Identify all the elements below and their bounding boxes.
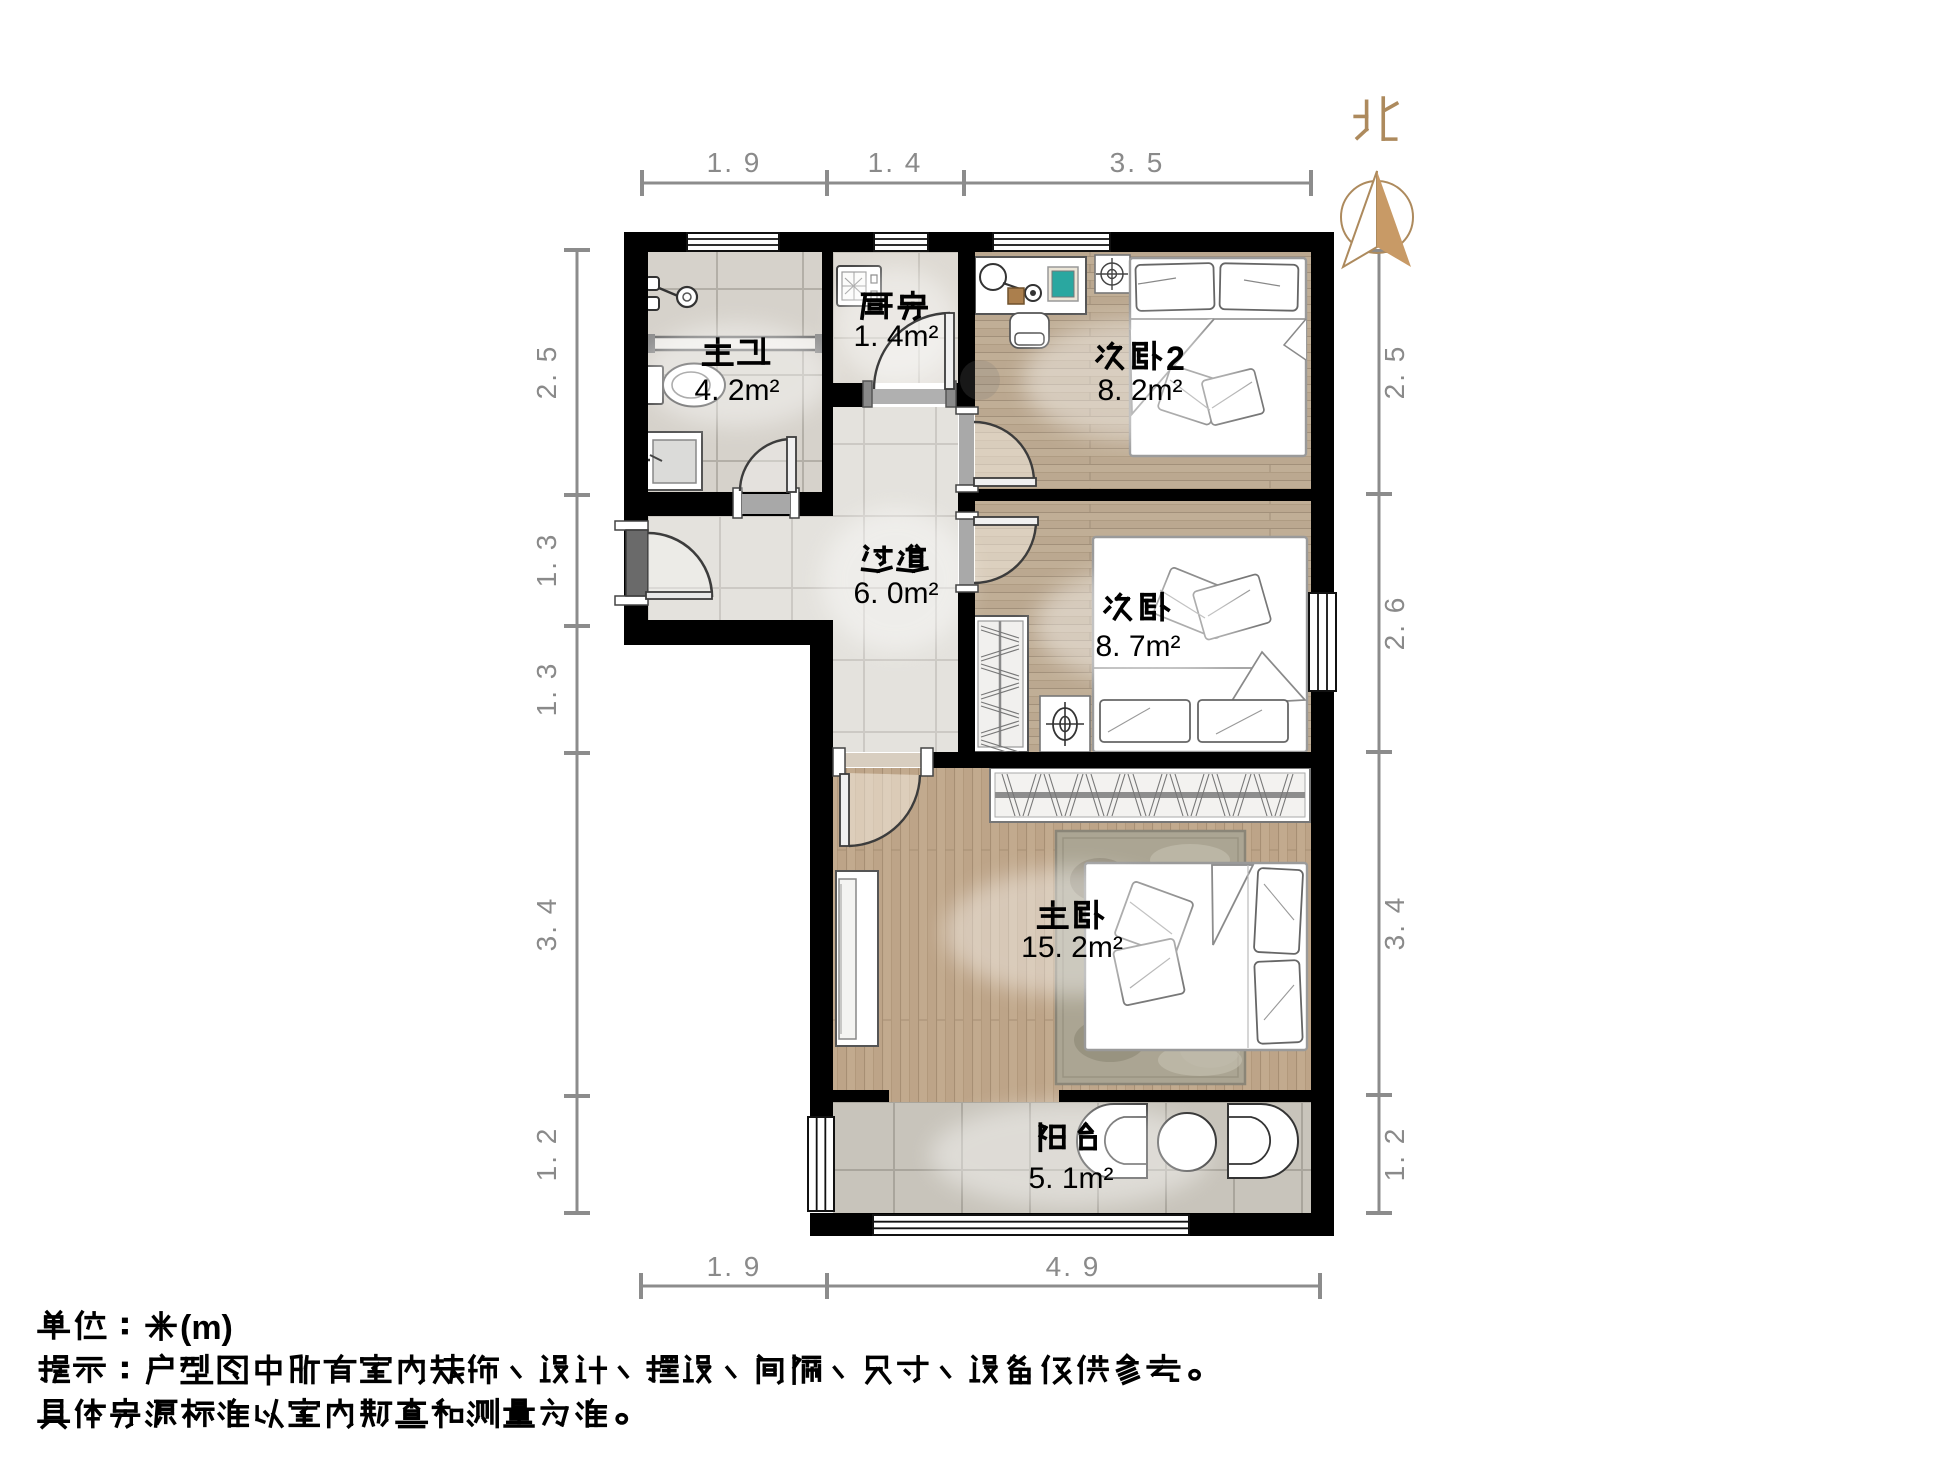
svg-text:3. 5: 3. 5 (1110, 147, 1165, 178)
svg-text:1. 4: 1. 4 (868, 147, 923, 178)
svg-text:(m): (m) (180, 1309, 233, 1347)
svg-text:3. 4: 3. 4 (531, 897, 562, 952)
svg-text:8. 7m²: 8. 7m² (1095, 630, 1180, 663)
svg-text:2. 5: 2. 5 (531, 345, 562, 400)
svg-text:3. 4: 3. 4 (1379, 896, 1410, 951)
svg-text:1. 2: 1. 2 (1379, 1127, 1410, 1182)
svg-text:1. 3: 1. 3 (531, 662, 562, 717)
svg-text:1. 9: 1. 9 (707, 1251, 762, 1282)
svg-text:5. 1m²: 5. 1m² (1028, 1162, 1113, 1195)
svg-text:1. 9: 1. 9 (707, 147, 762, 178)
svg-text:2. 6: 2. 6 (1379, 596, 1410, 651)
svg-text:1. 4m²: 1. 4m² (853, 320, 938, 353)
svg-text:15. 2m²: 15. 2m² (1021, 931, 1123, 964)
svg-text:1. 3: 1. 3 (531, 533, 562, 588)
svg-text:4. 2m²: 4. 2m² (694, 374, 779, 407)
svg-text:2. 5: 2. 5 (1379, 345, 1410, 400)
svg-text:4. 9: 4. 9 (1046, 1251, 1101, 1282)
svg-text:2: 2 (1166, 340, 1184, 378)
svg-text:6. 0m²: 6. 0m² (853, 577, 938, 610)
svg-text:8. 2m²: 8. 2m² (1097, 374, 1182, 407)
svg-text:1. 2: 1. 2 (531, 1127, 562, 1182)
